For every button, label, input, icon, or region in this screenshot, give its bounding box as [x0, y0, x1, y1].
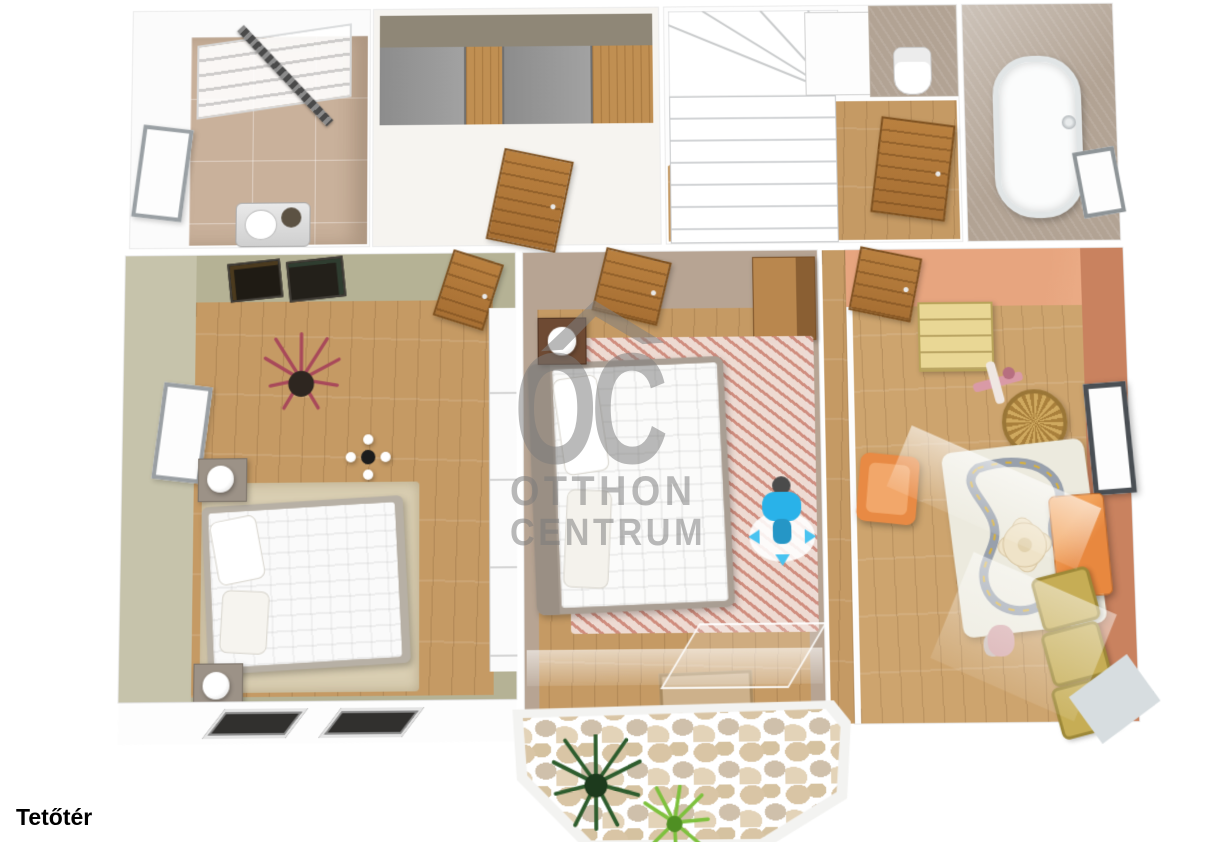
sink-plant — [281, 207, 301, 227]
wc-door — [870, 116, 955, 221]
roof-strip — [118, 699, 517, 745]
balcony-plant-dark — [548, 734, 645, 833]
teddy-bear — [987, 625, 1015, 657]
bathroom — [962, 4, 1120, 241]
wardrobe-sliding-doors — [380, 45, 654, 125]
wall-picture — [286, 256, 347, 303]
table-lamp — [548, 327, 577, 356]
wardrobe-panel-wood — [466, 47, 502, 125]
balcony — [510, 698, 857, 842]
bulb — [346, 452, 356, 462]
balcony-plant-light — [638, 785, 712, 842]
pillow — [219, 590, 270, 655]
closet-door — [486, 148, 574, 253]
person-figure — [745, 472, 819, 568]
kids-door — [848, 246, 922, 322]
wardrobe-cabinet — [752, 256, 816, 340]
orange-armchair — [856, 452, 921, 526]
wall-picture — [227, 258, 283, 302]
wardrobe-top-band — [380, 14, 653, 48]
bathtub-faucet — [1062, 115, 1077, 129]
bedroom-left — [118, 253, 516, 703]
light-center — [361, 450, 375, 465]
bathtub — [991, 55, 1085, 218]
closet-front — [489, 308, 518, 672]
ceiling-light — [346, 434, 391, 480]
wc-room — [868, 5, 958, 97]
bulb — [363, 434, 373, 444]
table-lamp — [202, 672, 229, 700]
laundry-room — [130, 10, 370, 248]
sink-basin — [245, 210, 278, 241]
roof-window — [131, 125, 194, 223]
nightstand — [538, 317, 587, 364]
table-lamp — [207, 466, 234, 493]
plant — [258, 332, 344, 419]
laundry-sink — [235, 202, 310, 247]
wardrobe-panel-wood — [592, 45, 653, 123]
pillow — [563, 489, 613, 589]
nightstand — [198, 458, 248, 502]
bed — [527, 356, 735, 616]
attic-floorplan — [97, 2, 1142, 842]
kids-room — [845, 248, 1139, 724]
bulb — [363, 469, 373, 479]
floor-label: Tetőtér — [16, 804, 92, 831]
wardrobe-panel-gray — [502, 46, 593, 124]
armchair-cushion — [866, 462, 911, 516]
bedroom-middle — [523, 250, 826, 724]
floorplan-image: OC OTTHON CENTRUM Tetőtér — [0, 0, 1209, 842]
bed — [202, 495, 411, 675]
stair-hall — [664, 5, 962, 244]
walk-in-closet — [373, 8, 661, 247]
roof-skylight — [318, 707, 424, 738]
wardrobe-panel-gray — [380, 47, 467, 125]
bulb — [380, 452, 390, 462]
toilet — [893, 47, 932, 95]
stair-flight — [669, 95, 839, 243]
roof-skylight — [202, 708, 308, 739]
